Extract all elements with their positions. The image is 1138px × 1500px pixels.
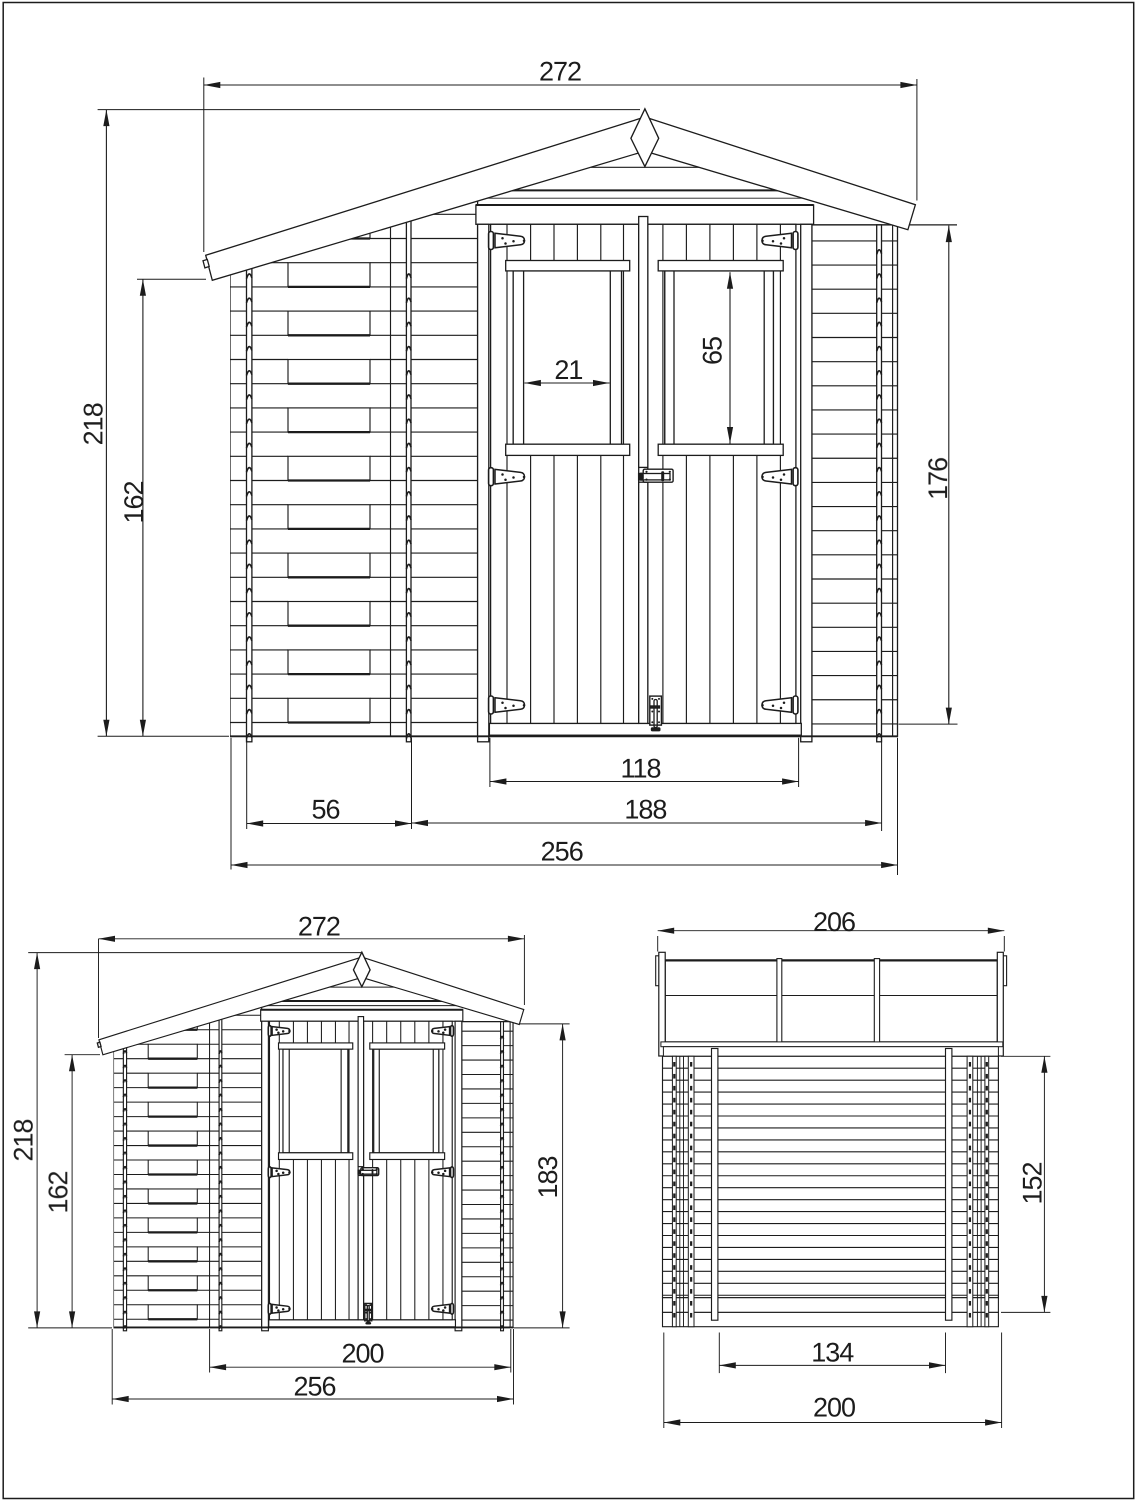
svg-text:256: 256 bbox=[293, 1372, 335, 1402]
svg-text:134: 134 bbox=[811, 1338, 854, 1368]
svg-text:21: 21 bbox=[554, 355, 582, 385]
svg-text:200: 200 bbox=[813, 1393, 855, 1423]
svg-text:200: 200 bbox=[341, 1339, 383, 1369]
svg-text:152: 152 bbox=[1018, 1162, 1048, 1204]
svg-text:206: 206 bbox=[813, 907, 855, 937]
svg-text:56: 56 bbox=[311, 795, 339, 825]
svg-text:218: 218 bbox=[9, 1120, 39, 1162]
svg-text:176: 176 bbox=[923, 458, 953, 500]
svg-text:183: 183 bbox=[533, 1156, 563, 1198]
svg-text:272: 272 bbox=[298, 912, 340, 942]
svg-text:65: 65 bbox=[698, 337, 728, 365]
svg-text:272: 272 bbox=[539, 57, 581, 87]
svg-text:162: 162 bbox=[43, 1171, 73, 1213]
svg-text:218: 218 bbox=[78, 403, 108, 445]
svg-text:118: 118 bbox=[620, 754, 660, 784]
svg-text:256: 256 bbox=[541, 837, 583, 867]
svg-text:188: 188 bbox=[624, 795, 666, 825]
svg-text:162: 162 bbox=[119, 481, 149, 523]
